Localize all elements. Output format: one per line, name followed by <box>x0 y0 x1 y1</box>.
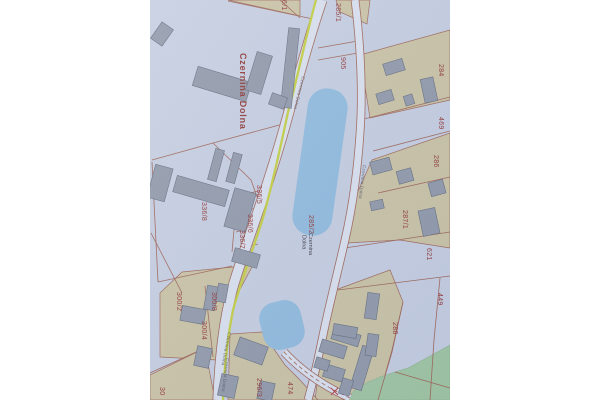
map-canvas: Czernina Dolna 285/1 905 284 469 286 287… <box>150 0 450 400</box>
map-photo: Czernina Dolna 285/1 905 284 469 286 287… <box>150 0 450 400</box>
screenshot-frame: Czernina Dolna 285/1 905 284 469 286 287… <box>0 0 600 400</box>
light-sheen-overlay <box>150 0 450 400</box>
